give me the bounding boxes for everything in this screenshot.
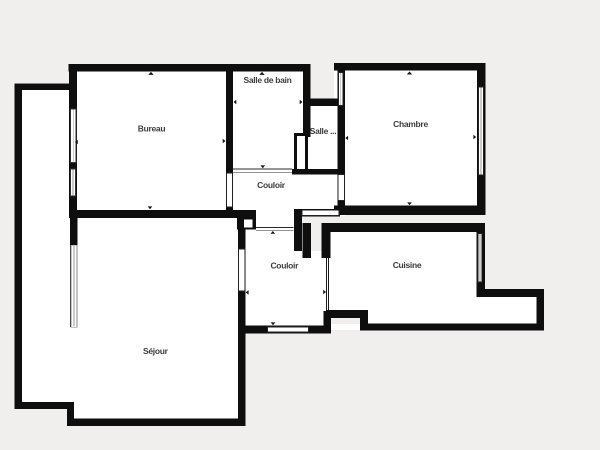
svg-text:Couloir: Couloir bbox=[257, 180, 286, 190]
svg-text:Cuisine: Cuisine bbox=[393, 260, 422, 270]
svg-text:Salle de bain: Salle de bain bbox=[243, 75, 291, 85]
svg-text:Chambre: Chambre bbox=[393, 119, 428, 129]
svg-text:Séjour: Séjour bbox=[143, 346, 169, 356]
svg-text:Salle ...: Salle ... bbox=[310, 126, 337, 136]
svg-text:Bureau: Bureau bbox=[138, 124, 166, 134]
svg-text:Couloir: Couloir bbox=[270, 261, 299, 271]
